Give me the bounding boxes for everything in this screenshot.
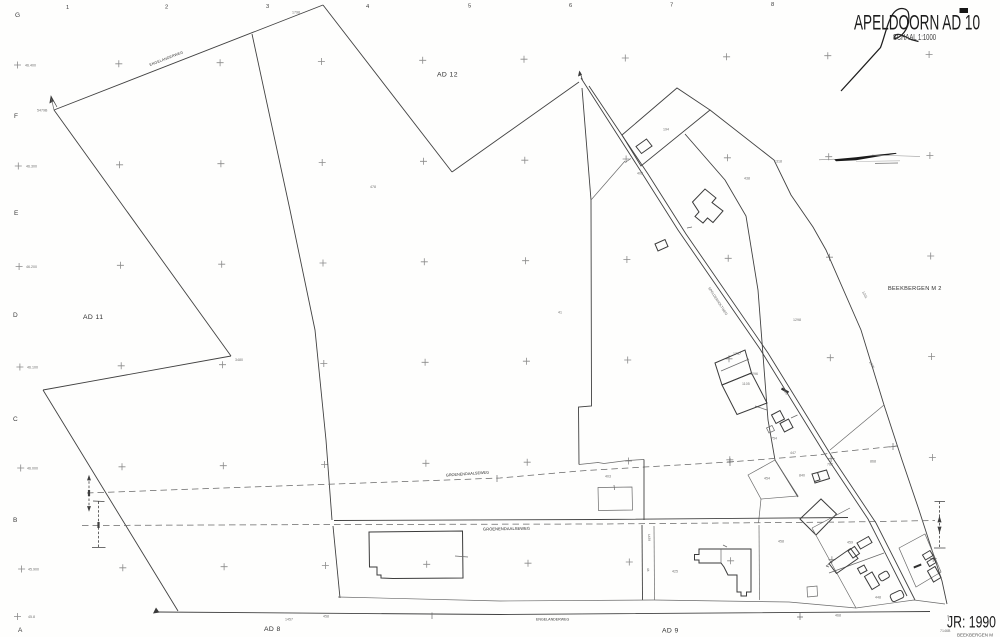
svg-text:APELDOORN AD 10: APELDOORN AD 10 xyxy=(854,12,980,35)
svg-text:5: 5 xyxy=(468,3,471,9)
svg-text:GROENENDAALSEWEG: GROENENDAALSEWEG xyxy=(483,526,530,532)
svg-text:1439: 1439 xyxy=(647,534,651,541)
svg-text:868: 868 xyxy=(870,460,876,464)
svg-text:438: 438 xyxy=(744,177,750,181)
svg-text:4: 4 xyxy=(366,4,370,10)
svg-text:459: 459 xyxy=(847,541,853,545)
svg-text:7: 7 xyxy=(670,3,673,9)
svg-text:AD 12: AD 12 xyxy=(437,72,458,79)
svg-text:ENGELANDERWEG: ENGELANDERWEG xyxy=(149,50,184,67)
svg-text:46.000: 46.000 xyxy=(27,467,38,471)
svg-text:BEEKBERGEN M 2: BEEKBERGEN M 2 xyxy=(888,286,942,292)
svg-text:5479B: 5479B xyxy=(37,109,48,113)
svg-text:G: G xyxy=(15,12,20,19)
svg-text:1457: 1457 xyxy=(285,618,293,622)
svg-text:ENGELANDERWEG: ENGELANDERWEG xyxy=(536,618,569,622)
svg-text:45.8: 45.8 xyxy=(28,615,35,619)
svg-text:A: A xyxy=(18,627,23,634)
svg-text:6: 6 xyxy=(569,3,572,9)
svg-text:425: 425 xyxy=(672,570,678,574)
svg-text:1201: 1201 xyxy=(861,291,868,300)
svg-text:478: 478 xyxy=(370,185,376,189)
svg-text:46.100: 46.100 xyxy=(27,366,38,370)
svg-text:46.200: 46.200 xyxy=(26,265,37,269)
svg-text:448: 448 xyxy=(875,596,881,600)
svg-text:B: B xyxy=(13,517,17,524)
svg-text:3: 3 xyxy=(266,4,269,10)
svg-text:7146B: 7146B xyxy=(940,629,951,633)
svg-text:41: 41 xyxy=(558,311,562,315)
svg-text:458: 458 xyxy=(323,615,329,619)
svg-text:E: E xyxy=(14,210,19,217)
svg-text:762: 762 xyxy=(827,463,833,467)
svg-text:1318: 1318 xyxy=(774,160,782,164)
svg-text:F: F xyxy=(14,113,18,120)
svg-text:45.900: 45.900 xyxy=(28,568,39,572)
svg-text:468: 468 xyxy=(835,614,841,618)
svg-text:D: D xyxy=(13,312,18,319)
svg-text:1798: 1798 xyxy=(292,11,300,15)
svg-text:8: 8 xyxy=(771,2,774,8)
svg-text:GROENENDAALSEWEG: GROENENDAALSEWEG xyxy=(446,470,489,477)
svg-text:447: 447 xyxy=(790,451,796,455)
svg-text:458: 458 xyxy=(778,540,784,544)
svg-text:1298: 1298 xyxy=(793,318,801,322)
svg-text:2495: 2495 xyxy=(868,361,875,370)
svg-text:46.300: 46.300 xyxy=(26,165,37,169)
svg-text:C: C xyxy=(13,416,18,423)
svg-text:AD 11: AD 11 xyxy=(83,314,103,321)
svg-text:AD 8: AD 8 xyxy=(264,626,281,633)
svg-text:BEEKBERGEN M: BEEKBERGEN M xyxy=(957,633,993,637)
svg-text:403: 403 xyxy=(605,475,611,479)
svg-text:454: 454 xyxy=(764,477,770,481)
svg-text:3480: 3480 xyxy=(235,358,243,362)
svg-text:754: 754 xyxy=(771,437,777,441)
svg-text:1: 1 xyxy=(66,5,69,11)
svg-text:44: 44 xyxy=(646,568,650,572)
svg-text:402: 402 xyxy=(637,172,643,176)
svg-text:46.400: 46.400 xyxy=(25,64,36,68)
svg-text:AD 9: AD 9 xyxy=(662,628,679,635)
svg-text:JR: 1990: JR: 1990 xyxy=(947,614,996,632)
svg-text:840: 840 xyxy=(799,474,805,478)
svg-text:1797: 1797 xyxy=(733,352,741,356)
svg-text:194: 194 xyxy=(663,128,669,132)
svg-text:1296: 1296 xyxy=(750,372,758,376)
svg-text:SCHAAL 1:1000: SCHAAL 1:1000 xyxy=(893,33,936,42)
svg-text:2: 2 xyxy=(165,5,168,11)
svg-text:1105: 1105 xyxy=(742,382,750,386)
